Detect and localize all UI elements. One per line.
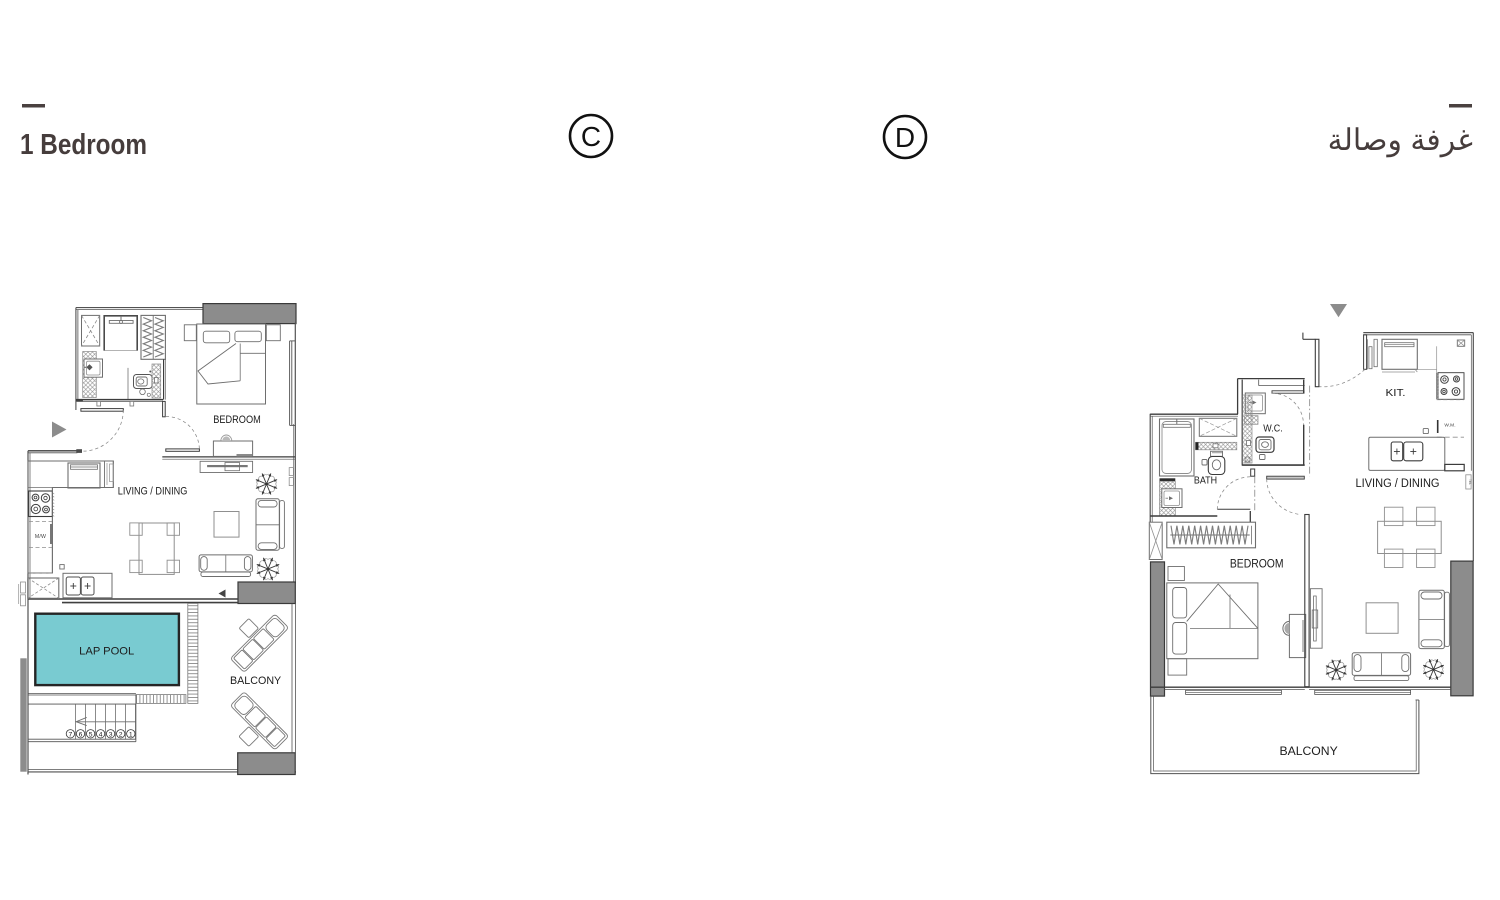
svg-text:1: 1 — [129, 731, 133, 738]
svg-text:D: D — [895, 122, 915, 153]
svg-text:M/W: M/W — [35, 534, 46, 540]
svg-text:7: 7 — [69, 731, 73, 738]
svg-text:TEL: TEL — [1468, 479, 1472, 485]
svg-text:LIVING / DINING: LIVING / DINING — [118, 485, 188, 497]
svg-text:LIVING / DINING: LIVING / DINING — [1356, 478, 1440, 490]
svg-text:5: 5 — [89, 731, 93, 738]
svg-text:1 Bedroom: 1 Bedroom — [20, 129, 147, 161]
svg-text:W.M.: W.M. — [1444, 423, 1455, 429]
svg-text:W.C.: W.C. — [1263, 423, 1282, 435]
svg-text:4: 4 — [99, 731, 103, 738]
svg-text:BALCONY: BALCONY — [1279, 744, 1337, 758]
svg-text:C: C — [581, 121, 601, 152]
svg-text:BATH: BATH — [1194, 475, 1217, 487]
svg-text:BEDROOM: BEDROOM — [1230, 557, 1284, 571]
svg-text:BEDROOM: BEDROOM — [213, 414, 261, 426]
svg-text:LAP POOL: LAP POOL — [79, 646, 134, 658]
svg-text:KIT.: KIT. — [1386, 387, 1406, 399]
svg-text:غرفة وصالة: غرفة وصالة — [1328, 124, 1473, 158]
svg-text:2: 2 — [119, 731, 123, 738]
svg-text:6: 6 — [79, 731, 83, 738]
svg-text:3: 3 — [109, 731, 113, 738]
svg-text:BALCONY: BALCONY — [230, 675, 282, 687]
